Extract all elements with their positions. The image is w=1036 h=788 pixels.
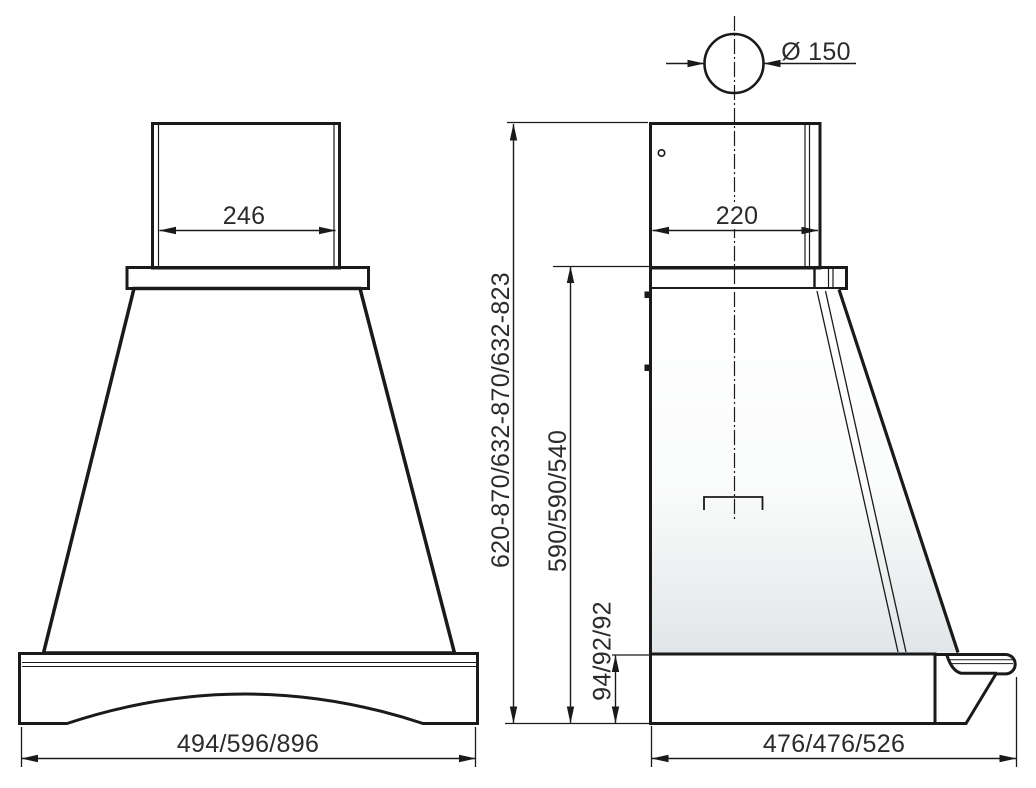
mounting-height-label: 620-870/632-870/632-823 (487, 272, 515, 568)
side-front-edge-pin-upper (645, 292, 650, 299)
trim-height-label: 94/92/92 (589, 601, 617, 701)
front-overall-width-label: 494/596/896 (177, 730, 319, 758)
side-duct-depth-label: 220 (716, 202, 759, 230)
body-height-label: 590/590/540 (544, 430, 572, 572)
range-hood-dimension-drawing: 246 494/596/896 (0, 0, 1036, 788)
side-front-edge-pin-lower (645, 365, 650, 372)
front-duct-width-label: 246 (223, 202, 266, 230)
page-background (0, 0, 1036, 788)
side-overall-depth-label: 476/476/526 (763, 730, 905, 758)
flue-diameter-label: Ø 150 (781, 38, 851, 66)
drawing-canvas: 246 494/596/896 (0, 0, 1036, 788)
